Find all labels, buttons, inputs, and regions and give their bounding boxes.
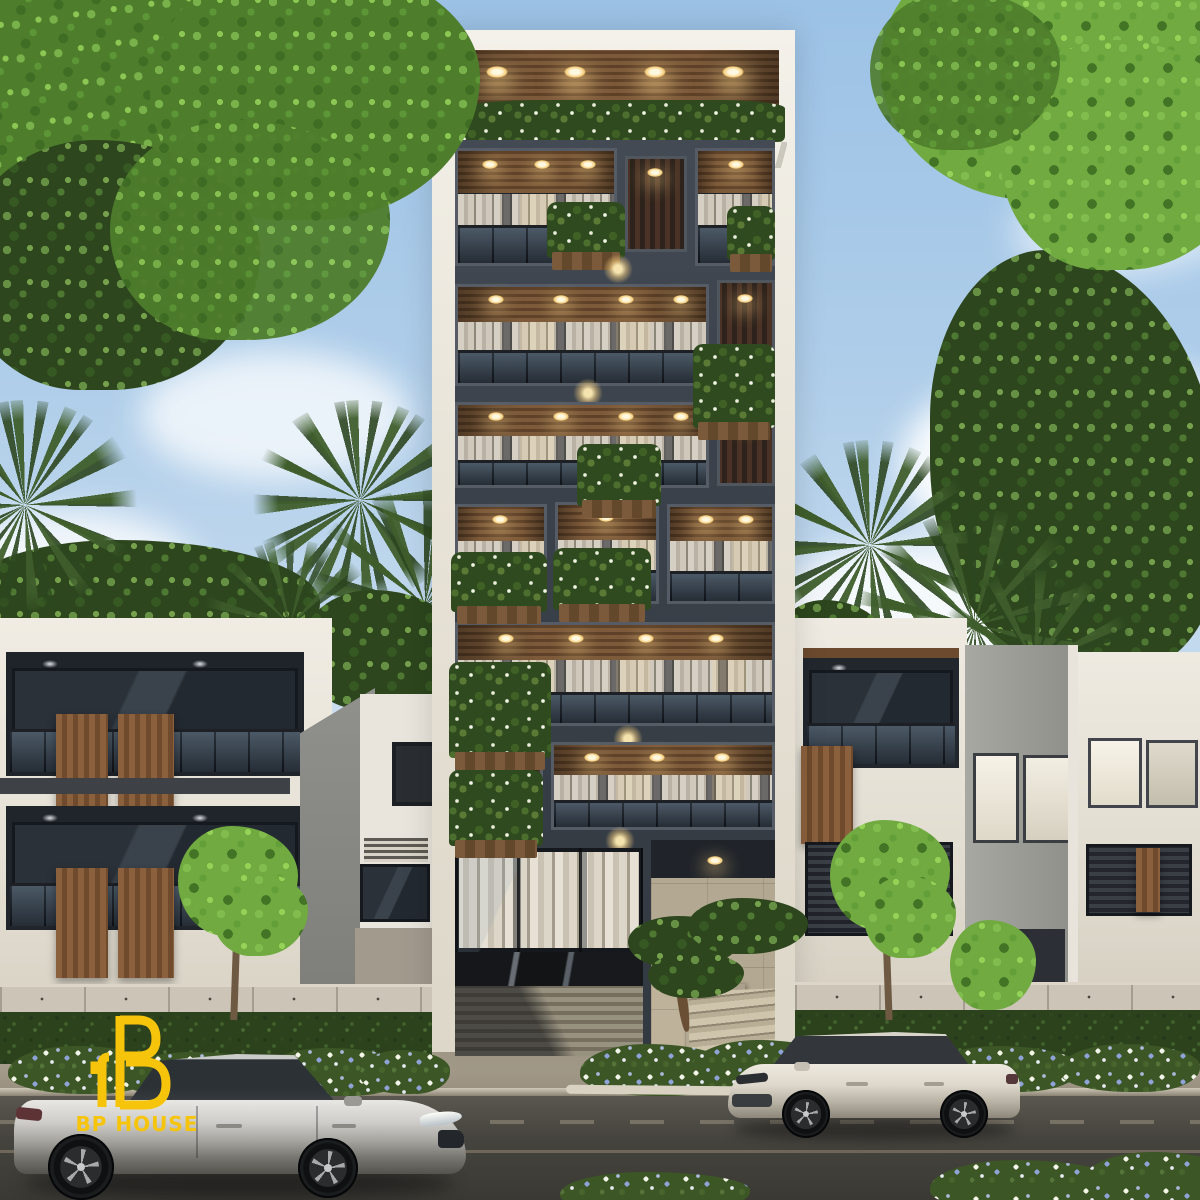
car-wheel [782,1090,830,1138]
glass-balustrade [554,800,772,827]
lit-window [1023,755,1071,843]
car-door-handle [924,1082,944,1086]
wheel-rim [311,1151,345,1185]
bp-house-logo-text: BP HOUSE [62,1112,212,1136]
wood-ceiling [698,151,772,193]
planter-box [451,552,547,612]
downlight [649,753,665,762]
downlight [553,412,569,421]
downlight [498,634,514,643]
wood-shutter-panel [801,746,853,844]
wood-shutter-panel [118,868,174,978]
downlight [722,66,744,78]
wood-ceiling [458,507,544,541]
ceiling-light [192,814,208,822]
downlight [618,295,634,304]
car-wheel [48,1134,114,1200]
balcony-bay [667,504,775,604]
downlight [738,515,754,524]
planter-box [693,344,775,428]
wood-ceiling [458,151,614,193]
downlight [714,753,730,762]
car-door-handle [216,1124,242,1128]
car-intake [732,1094,772,1107]
planter-box [449,662,551,758]
planter-box [547,202,625,258]
car-wheel [940,1090,988,1138]
downlight [673,412,689,421]
garage-shadow [455,986,643,1056]
downlight [638,634,654,643]
white-pillar [1068,645,1078,1012]
tower-floor [455,616,775,732]
balcony-bay [455,284,709,386]
black-marble-band [455,952,643,986]
wood-ceiling [554,745,772,775]
car-taillight [15,1107,42,1122]
bp-house-logo-icon [82,1012,178,1110]
window-column [625,156,687,252]
left-townhouse [0,618,332,1012]
downlight [728,160,744,169]
downlight [737,294,753,303]
downlight [644,66,666,78]
downlight [698,515,714,524]
car-grille [438,1130,464,1148]
car-taillight [1006,1074,1018,1084]
mid-left-house [300,688,432,1012]
window [1146,740,1198,808]
downlight [486,66,508,78]
downlight [673,295,689,304]
bp-house-logo: BP HOUSE [62,1012,212,1142]
roof-planting [442,100,785,142]
downlight [553,295,569,304]
tree-canopy-top-left [110,120,390,340]
wood-ceiling-strip [803,648,959,658]
car-wheel [298,1138,358,1198]
planter-box [449,770,543,846]
downlight [647,168,663,177]
downlight [482,160,498,169]
right-townhouse-c [1078,652,1200,1012]
ceiling-light [192,660,208,668]
right-townhouse-a [795,618,967,1012]
wheel-rim [794,1102,819,1127]
downlight [488,412,504,421]
wood-accent [1136,848,1160,912]
wheel-rim [63,1149,100,1186]
flower-bed [1060,1044,1200,1092]
lit-window [1088,738,1142,808]
framed-window [392,742,436,806]
planter-box [553,548,651,610]
downlight [584,753,600,762]
lit-window [973,753,1019,843]
downlight [488,295,504,304]
car-cream-hatchback [728,1030,1020,1142]
curtain-band [670,541,772,575]
planter-box [727,206,775,260]
architectural-render: BP HOUSE [0,0,1200,1200]
window-mullions [455,848,643,952]
downlight [708,634,724,643]
louver-vent [364,838,428,862]
wheel-rim [952,1102,977,1127]
window-glass [809,670,953,728]
downlight [534,160,550,169]
window-glass [360,864,430,922]
slab-band [0,778,290,794]
downlight [580,160,596,169]
wood-ceiling [458,287,706,322]
balcony-bay [551,742,775,830]
wood-ceiling [670,507,772,541]
wood-ceiling [458,625,772,660]
tower-floor [455,278,775,392]
downlight [568,634,584,643]
planter-box [577,444,661,506]
car-door-handle [846,1082,868,1086]
downlight [492,515,508,524]
wood-ceiling [458,405,706,436]
car-side-mirror [794,1062,810,1071]
glass-balustrade [670,571,772,601]
ceiling-light [42,660,58,668]
downlight [618,412,634,421]
downlight [564,66,586,78]
car-door-handle [332,1124,356,1128]
tower-floor [455,142,775,272]
wood-shutter-panel [56,868,108,978]
ceiling-light [42,814,58,822]
porch-light [707,856,723,865]
car-side-mirror [344,1096,362,1106]
